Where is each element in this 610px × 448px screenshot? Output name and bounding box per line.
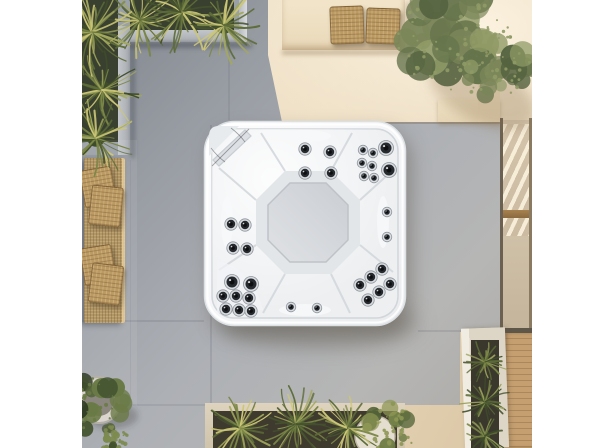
tile-seam xyxy=(228,48,230,120)
footwell xyxy=(268,183,348,262)
left-planter-wall xyxy=(118,26,130,155)
bottom-planter-soil xyxy=(213,411,397,448)
door-frame xyxy=(529,118,532,332)
top-planter-edge xyxy=(239,0,247,42)
patio-photo xyxy=(82,0,532,448)
wicker-pillow xyxy=(329,5,364,44)
hot-tub xyxy=(203,120,407,327)
bench-cushion xyxy=(88,184,124,227)
glass-reflection xyxy=(503,124,532,236)
door-wood-beam xyxy=(503,210,532,218)
bench-cushion xyxy=(88,262,125,306)
sunlit-wall-corner xyxy=(478,46,500,122)
door-frame xyxy=(500,118,503,332)
wicker-pillow xyxy=(365,7,400,44)
trough-planter-soil xyxy=(471,340,499,448)
top-bench-shadow xyxy=(282,50,408,55)
top-bench-edge-shadow xyxy=(405,2,412,56)
left-planter-soil xyxy=(82,0,118,142)
